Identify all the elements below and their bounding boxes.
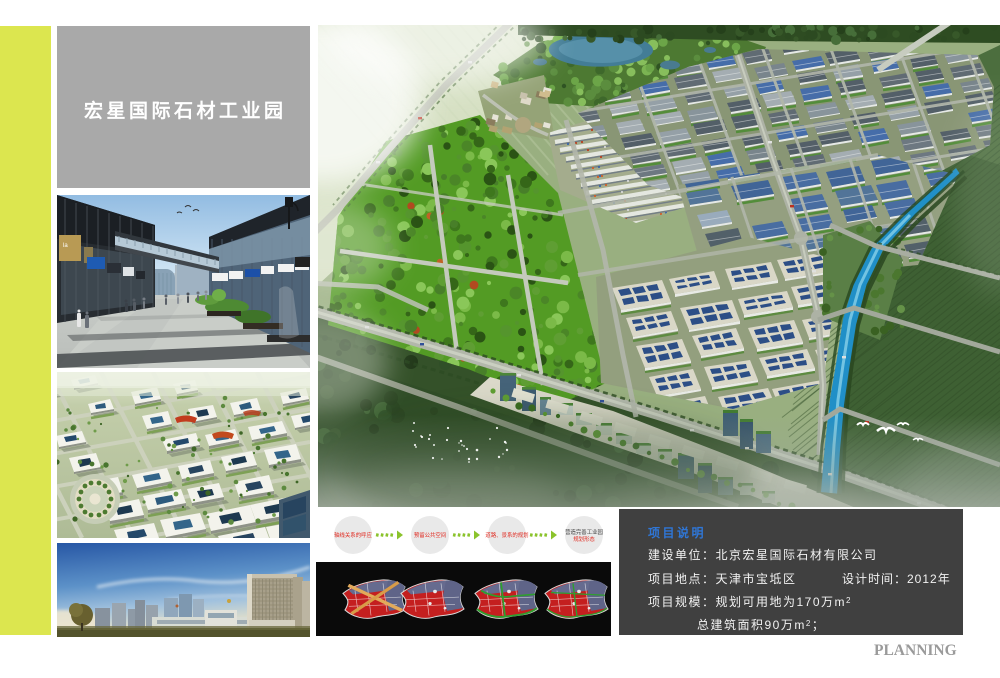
svg-text:道路、景系的规划: 道路、景系的规划 <box>485 531 528 539</box>
svg-text:轴线关系的呼应: 轴线关系的呼应 <box>334 531 372 539</box>
svg-text:预留公共空间: 预留公共空间 <box>414 531 446 539</box>
svg-text:规划形态: 规划形态 <box>573 535 595 543</box>
svg-text:营造完善工业园: 营造完善工业园 <box>565 528 603 536</box>
svg-text:la: la <box>63 243 68 249</box>
